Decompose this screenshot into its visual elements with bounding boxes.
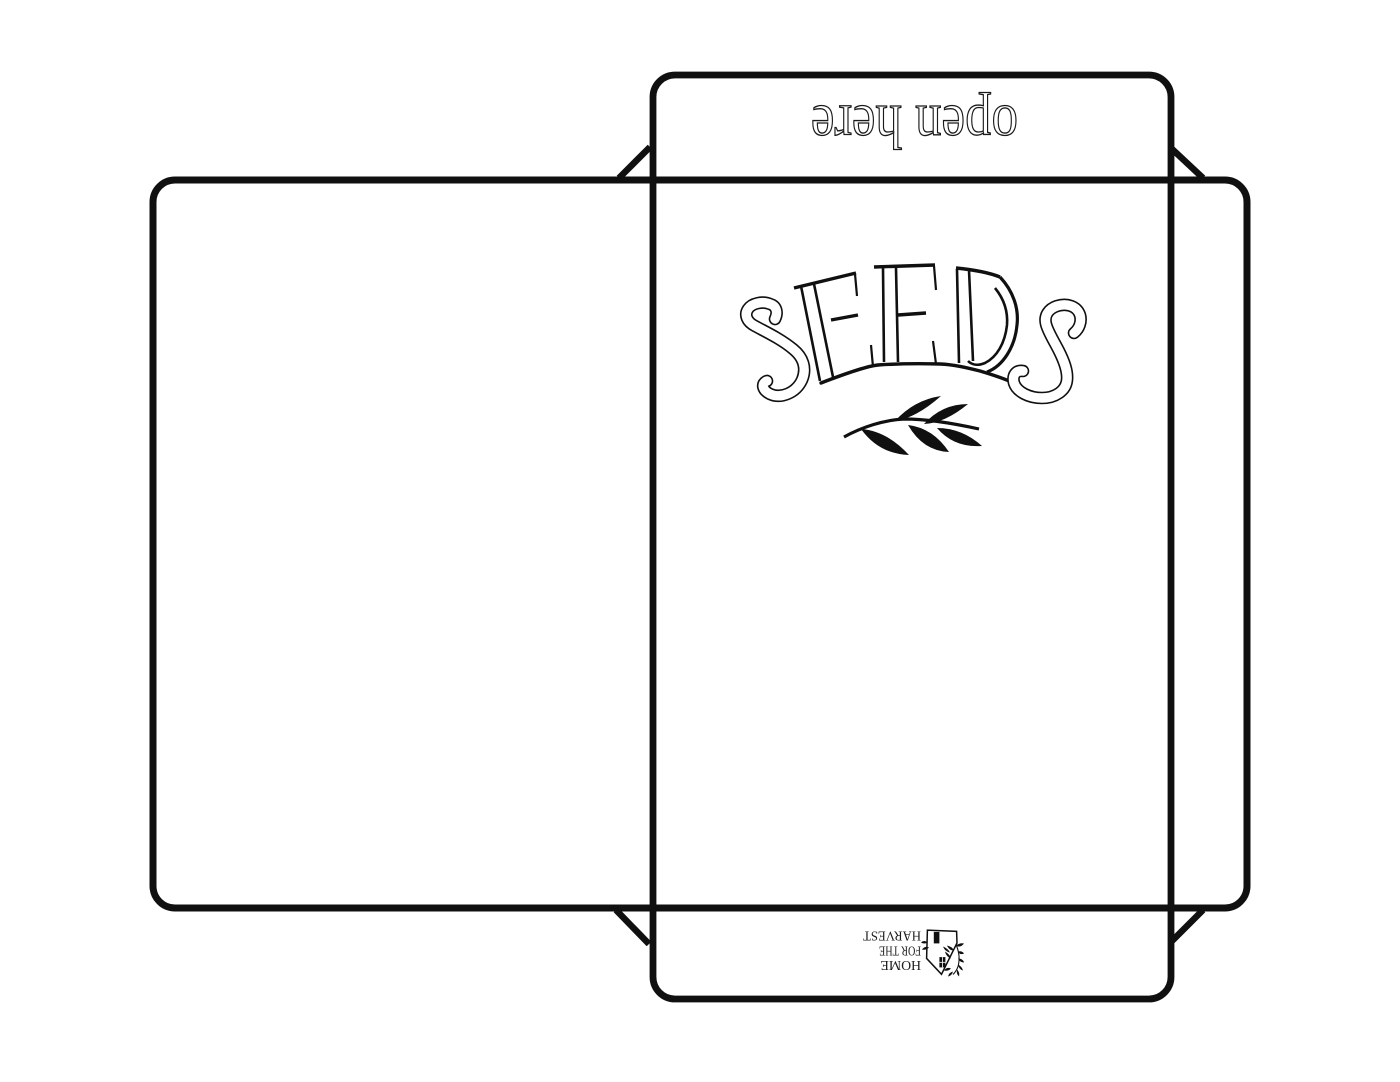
svg-text:HOME: HOME: [881, 957, 922, 972]
svg-text:HARVEST: HARVEST: [863, 927, 921, 942]
svg-text:FOR THE: FOR THE: [879, 942, 921, 957]
svg-text:open here: open here: [811, 92, 1018, 160]
